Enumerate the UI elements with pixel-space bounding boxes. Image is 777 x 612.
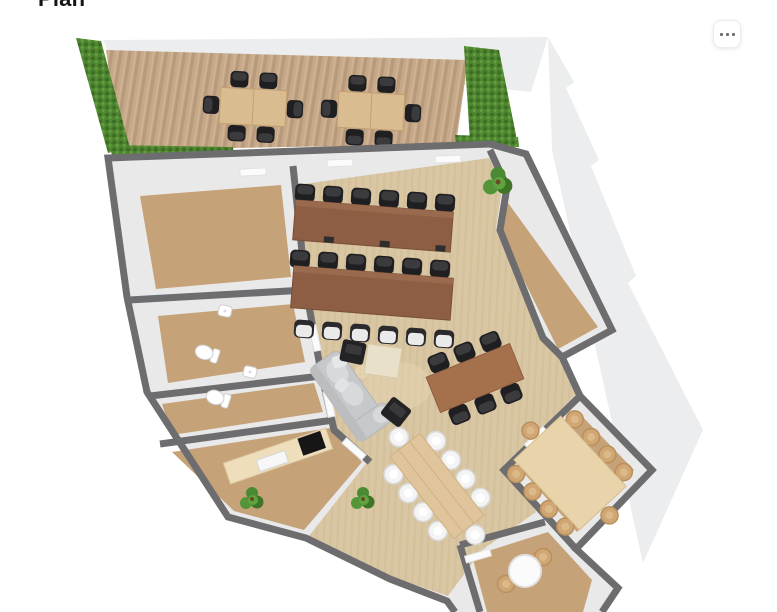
outdoor-chair bbox=[345, 129, 364, 146]
outdoor-chair bbox=[202, 95, 219, 114]
desk-chair bbox=[350, 187, 371, 206]
outdoor-chair bbox=[230, 71, 249, 88]
desk-chair-light bbox=[433, 329, 454, 348]
desk-chair-light bbox=[349, 323, 370, 342]
desk-chair bbox=[373, 255, 394, 274]
floorplan-render bbox=[0, 0, 777, 612]
outdoor-chair bbox=[256, 126, 275, 143]
plan-page: Plan bbox=[0, 0, 777, 612]
ellipsis-icon bbox=[726, 33, 729, 36]
outdoor-chair bbox=[348, 75, 367, 92]
desk-chair-light bbox=[377, 325, 398, 344]
outdoor-chair bbox=[259, 72, 278, 89]
deck-floor bbox=[106, 50, 468, 150]
wall-sink bbox=[217, 304, 232, 317]
desk-chair-light bbox=[293, 319, 314, 338]
ellipsis-icon bbox=[720, 33, 723, 36]
door-leaf bbox=[240, 168, 266, 176]
cable-tray bbox=[324, 236, 334, 243]
outdoor-chair bbox=[404, 104, 421, 123]
coffee-table bbox=[364, 344, 402, 378]
desk-chair bbox=[401, 257, 422, 276]
cable-tray bbox=[435, 245, 445, 252]
cable-tray bbox=[379, 241, 389, 248]
desk-chair bbox=[434, 193, 455, 212]
door-leaf bbox=[327, 159, 353, 167]
outdoor-chair bbox=[320, 99, 337, 118]
outdoor-chair bbox=[227, 125, 246, 142]
desk-chair-light bbox=[321, 321, 342, 340]
desk-chair bbox=[406, 191, 427, 210]
outdoor-chair bbox=[377, 76, 396, 93]
desk-chair bbox=[429, 259, 450, 278]
ellipsis-icon bbox=[732, 33, 735, 36]
breakout-table bbox=[509, 555, 541, 587]
door-leaf bbox=[435, 155, 461, 163]
desk-chair bbox=[378, 189, 399, 208]
desk-chair-light bbox=[405, 327, 426, 346]
wall-sink bbox=[242, 365, 257, 378]
more-options-button[interactable] bbox=[713, 20, 741, 48]
outdoor-chair bbox=[286, 100, 303, 119]
floorplan-canvas[interactable] bbox=[0, 0, 777, 612]
room-top-left-floor bbox=[140, 185, 291, 289]
